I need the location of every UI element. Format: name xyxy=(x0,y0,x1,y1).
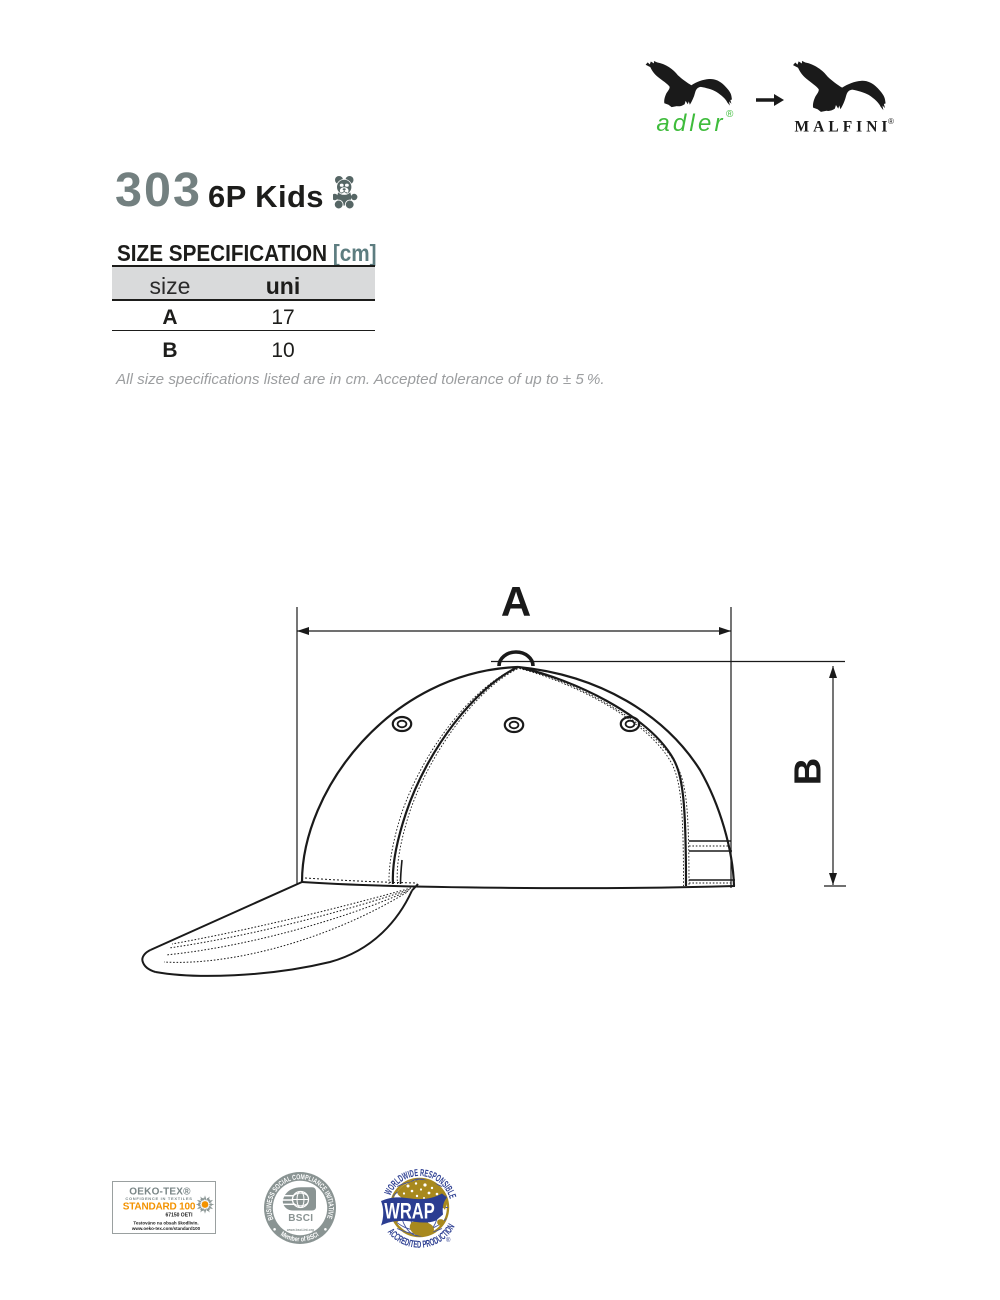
svg-text:CONFIDENCE IN TEXTILES: CONFIDENCE IN TEXTILES xyxy=(125,1196,192,1201)
svg-text:www.bsci-int.org: www.bsci-int.org xyxy=(286,1228,314,1232)
svg-text:STANDARD 100: STANDARD 100 xyxy=(123,1202,196,1213)
svg-text:WRAP: WRAP xyxy=(384,1199,434,1224)
svg-text:B: B xyxy=(788,758,830,785)
svg-text:www.oeko-tex.com/standard100: www.oeko-tex.com/standard100 xyxy=(131,1226,201,1231)
svg-text:BSCI: BSCI xyxy=(288,1213,313,1224)
svg-text:Testováno na obsah škodlivin.: Testováno na obsah škodlivin. xyxy=(133,1221,198,1226)
svg-text:67150 OETI: 67150 OETI xyxy=(166,1213,194,1219)
svg-text:MALFINI: MALFINI xyxy=(795,119,892,136)
svg-text:adler: adler xyxy=(656,110,725,137)
svg-text:®: ® xyxy=(726,109,734,120)
svg-text:A: A xyxy=(501,578,531,625)
svg-text:®: ® xyxy=(888,117,894,126)
svg-text:®: ® xyxy=(446,1237,451,1244)
